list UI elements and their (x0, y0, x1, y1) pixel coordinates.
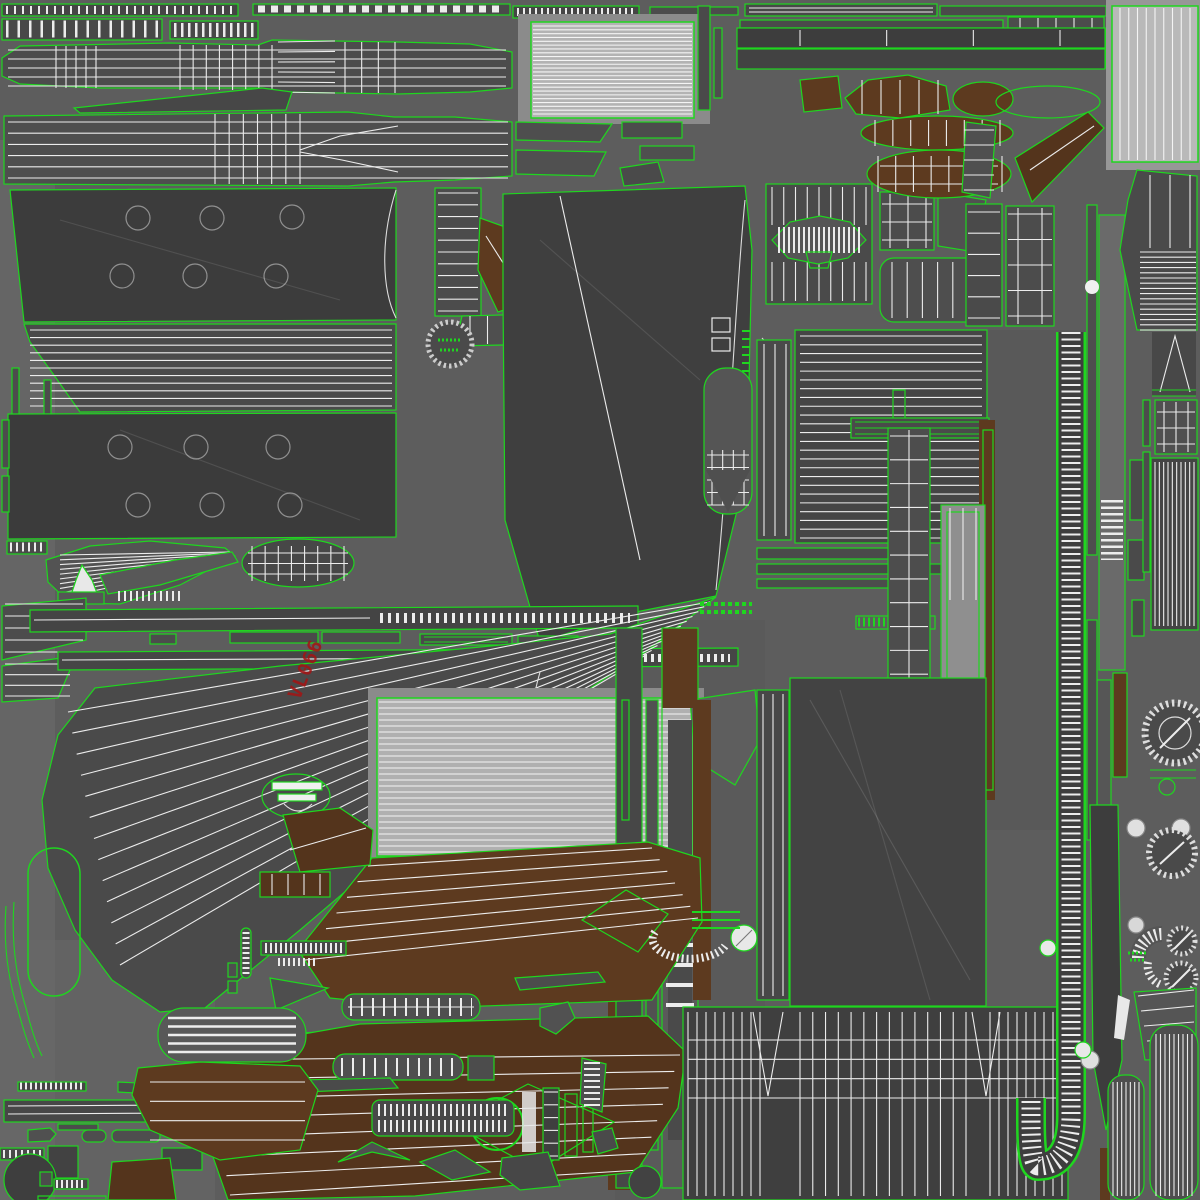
gear-dial (428, 322, 472, 366)
thin-bar-right (740, 20, 1003, 28)
strip-row-c (322, 632, 400, 643)
thin-strip-c (650, 7, 738, 15)
round-box (880, 258, 980, 322)
tr-bar-1 (737, 28, 1105, 48)
rm-bits-2 (1128, 540, 1144, 580)
ladder-glyph (543, 1088, 559, 1160)
bottom-panel (683, 1007, 1068, 1200)
white-glyph-bar (522, 1092, 536, 1152)
rm-bits-3 (1132, 600, 1144, 636)
sliver-v2 (714, 28, 722, 98)
strip-e (940, 6, 1106, 16)
white-circle-3 (1075, 1042, 1091, 1058)
rm-bits-1 (1130, 460, 1144, 520)
comb-arc (1148, 962, 1162, 985)
thin-strip-r3 (757, 579, 907, 588)
white-circle-2 (1040, 940, 1056, 956)
rm-strip-1 (1087, 205, 1097, 555)
mid-strip-4 (640, 146, 694, 160)
hatch-rect-top (531, 22, 694, 118)
rc-panel-top (1120, 170, 1197, 330)
white-pill-bar1 (272, 782, 322, 790)
white-dot (1085, 280, 1099, 294)
receiver-panel-2 (8, 413, 396, 539)
receiver-panel-1 (10, 188, 396, 322)
pill-bl (82, 1130, 106, 1142)
ribbed-bar-a (2, 19, 162, 40)
wood-lump-1 (845, 75, 950, 118)
mid-strip-3 (622, 122, 682, 138)
circle-small-bl (629, 1166, 661, 1198)
rc-sliver-1 (1143, 400, 1150, 446)
rc-vpanel (1151, 458, 1198, 630)
ring-a (1128, 917, 1144, 933)
white-pill-bar2 (278, 794, 316, 801)
kite-vertical (580, 1058, 606, 1112)
rc-sliver-2 (1143, 452, 1150, 572)
sliver-v1 (698, 6, 710, 110)
br-vpanel-1-lines (1113, 1082, 1139, 1196)
long-strip-d (745, 4, 937, 16)
mini-pill-1 (228, 963, 237, 977)
left-sliver-2 (2, 476, 9, 512)
mid-strip-5 (620, 162, 664, 186)
parallelogram (74, 88, 292, 113)
small-ring-g (1159, 779, 1175, 795)
strip-row-a (150, 634, 176, 644)
bracket-box (468, 1056, 494, 1080)
rm-strip-2 (1099, 215, 1125, 670)
uv-atlas-svg (0, 0, 1200, 1200)
saw-column-1 (966, 204, 1002, 326)
uv-atlas-canvas: VL066 (0, 0, 1200, 1200)
saw-column-2 (1006, 206, 1054, 326)
mid-strip-2 (516, 150, 606, 176)
left-sliver-1 (2, 420, 9, 468)
wood-bump-left (800, 76, 842, 112)
dial-1-base (1150, 770, 1196, 778)
wood-diag-1 (1015, 112, 1104, 202)
mini-pill-2 (228, 981, 237, 993)
comb-strip-left (261, 941, 346, 955)
dial-1 (1145, 703, 1200, 763)
wood-bits (108, 1158, 176, 1200)
grid-tiny (40, 1172, 52, 1186)
thin-bl-1 (58, 1124, 98, 1130)
tr-bar-2 (737, 49, 1105, 69)
mid-strip-1 (516, 122, 612, 142)
rm-wood-strip (1113, 673, 1127, 777)
hatch-circ-1 (1127, 819, 1145, 837)
center-strip-3-wood (662, 628, 698, 708)
